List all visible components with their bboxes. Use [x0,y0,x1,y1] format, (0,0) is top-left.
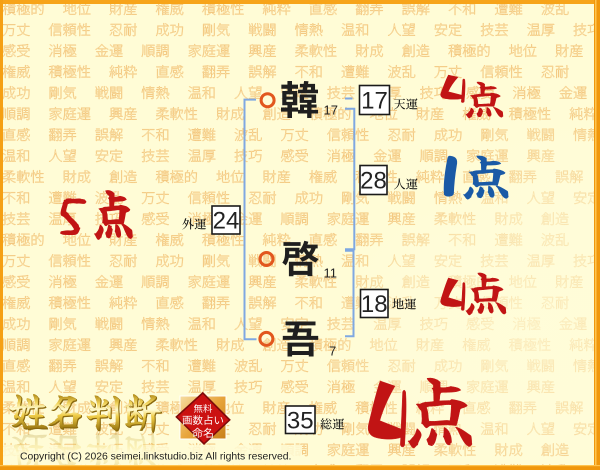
svg-text:24: 24 [213,208,240,235]
svg-text:17: 17 [361,88,388,115]
svg-text:18: 18 [361,291,388,318]
svg-text:35: 35 [287,407,314,434]
svg-text:Copyright (C) 2026 seimei.link: Copyright (C) 2026 seimei.linkstudio.biz… [20,452,291,463]
svg-text:17: 17 [324,103,338,118]
svg-text:11: 11 [324,266,338,281]
svg-text:7: 7 [329,344,336,359]
svg-text:28: 28 [360,168,387,195]
